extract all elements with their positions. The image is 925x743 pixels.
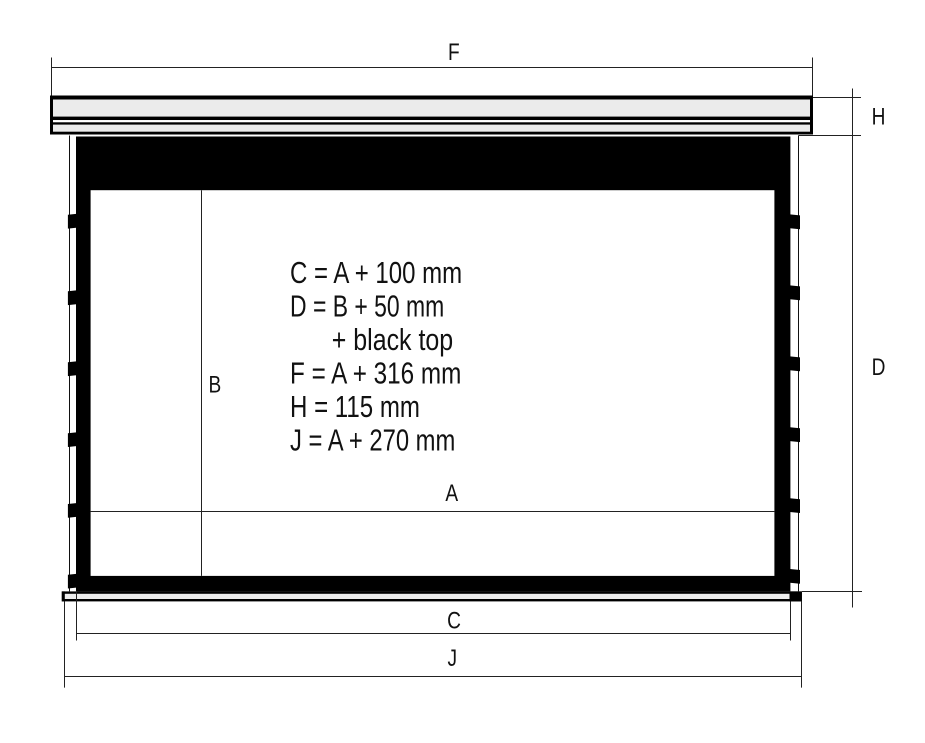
svg-text:C: C [447, 606, 461, 634]
svg-text:D: D [872, 353, 886, 381]
svg-text:D = B + 50 mm: D = B + 50 mm [290, 288, 444, 323]
svg-text:J = A + 270 mm: J = A + 270 mm [290, 423, 455, 458]
svg-text:C = A + 100 mm: C = A + 100 mm [290, 255, 462, 290]
svg-text:H = 115 mm: H = 115 mm [290, 389, 420, 424]
svg-text:F = A + 316 mm: F = A + 316 mm [290, 356, 461, 391]
svg-text:+ black top: + black top [332, 322, 453, 356]
svg-text:J: J [448, 644, 458, 672]
svg-text:B: B [209, 370, 222, 398]
svg-text:A: A [445, 478, 458, 506]
svg-text:F: F [448, 38, 460, 66]
svg-text:H: H [872, 102, 886, 130]
